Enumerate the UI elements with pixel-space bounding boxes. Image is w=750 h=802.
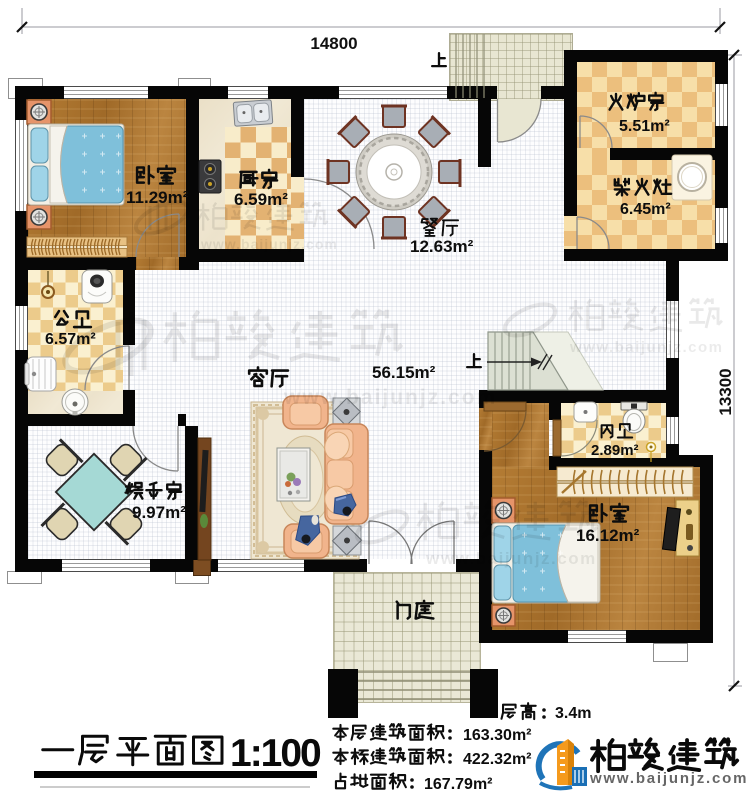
svg-text:12.63m²: 12.63m²: [410, 237, 474, 256]
svg-text:9.97m²: 9.97m²: [132, 503, 186, 522]
svg-text:163.30m²: 163.30m²: [463, 727, 532, 744]
svg-text:www.baijunjz.com: www.baijunjz.com: [200, 236, 338, 252]
svg-text:6.45m²: 6.45m²: [620, 201, 671, 218]
svg-text:1:100: 1:100: [230, 732, 321, 775]
svg-text:www.baijunjz.com: www.baijunjz.com: [283, 386, 497, 409]
svg-text:www.baijunjz.com: www.baijunjz.com: [569, 339, 723, 356]
svg-text:www.baijunjz.com: www.baijunjz.com: [589, 770, 748, 787]
svg-text:6.59m²: 6.59m²: [234, 190, 288, 209]
svg-text:14800: 14800: [310, 34, 357, 53]
svg-text:56.15m²: 56.15m²: [372, 363, 436, 382]
svg-text:3.4m: 3.4m: [555, 705, 591, 722]
svg-text:167.79m²: 167.79m²: [424, 776, 493, 793]
svg-text:5.51m²: 5.51m²: [619, 118, 670, 135]
svg-text:www.baijunjz.com: www.baijunjz.com: [425, 549, 597, 568]
svg-text:6.57m²: 6.57m²: [45, 331, 96, 348]
svg-text:422.32m²: 422.32m²: [463, 751, 532, 768]
svg-text:2.89m²: 2.89m²: [591, 442, 639, 459]
svg-text:11.29m²: 11.29m²: [126, 188, 189, 207]
svg-text:16.12m²: 16.12m²: [576, 526, 640, 545]
svg-text:13300: 13300: [716, 368, 735, 415]
